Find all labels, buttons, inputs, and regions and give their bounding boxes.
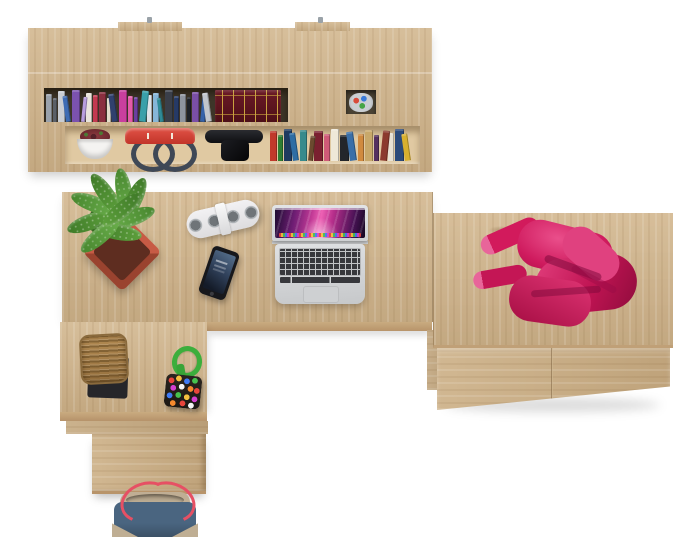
laptop-keyboard (279, 248, 361, 276)
book-spine (187, 97, 191, 122)
book-spine (300, 130, 307, 161)
shelf-upper-compartment (44, 88, 288, 122)
pink-sweater (473, 216, 643, 346)
book-spine (331, 129, 339, 161)
wall-bracket-icon (318, 17, 323, 23)
desk-side-panel (66, 421, 208, 434)
shelf-cup-notch (346, 90, 376, 114)
shelf-mount-tab (118, 22, 182, 31)
potted-plant (64, 184, 158, 286)
screen-menubar (275, 208, 365, 210)
book-spine (46, 94, 52, 122)
succulent-cup (77, 129, 113, 161)
tote-bag (112, 486, 198, 537)
pencil-cup (349, 93, 373, 112)
laptop (272, 205, 368, 304)
bead-pouch (163, 373, 202, 410)
shelf-row1-books (46, 88, 213, 122)
book-spine (324, 134, 330, 161)
book-spine (192, 92, 199, 122)
shelf-edge-highlight (28, 72, 432, 74)
book-spine (180, 94, 186, 122)
laptop-lid (272, 205, 368, 241)
screen-dock (279, 233, 362, 237)
book-spine (99, 92, 106, 122)
laptop-base (275, 244, 365, 304)
red-handbag (123, 128, 197, 162)
wall-bracket-icon (147, 17, 152, 23)
book-spine (128, 96, 133, 122)
book-spine (358, 134, 364, 161)
white-cup (77, 139, 113, 159)
book-spine (278, 135, 283, 161)
book-spine (270, 131, 277, 161)
wicker-basket (79, 333, 130, 385)
shelf-row2-books (270, 127, 412, 161)
headphones (205, 130, 265, 162)
handbag-body (125, 128, 195, 144)
book-spine (93, 95, 98, 122)
book-spine (72, 90, 80, 122)
wall-shelf (28, 28, 432, 172)
book-spine (134, 97, 138, 122)
desk-return-front-edge (60, 412, 207, 421)
desk-front-edge (207, 322, 432, 331)
shelf-mount-tab (295, 22, 350, 31)
antique-book-set (215, 90, 281, 122)
scene (0, 0, 700, 537)
book-spine (165, 90, 173, 122)
book-spine (374, 135, 379, 161)
laptop-screen (275, 208, 365, 238)
headphones-earcup (221, 140, 249, 161)
speaker-clasp (215, 202, 232, 235)
book-spine (53, 98, 57, 122)
book-spine (365, 130, 373, 161)
book-spine (119, 90, 127, 122)
laptop-trackpad (303, 286, 339, 303)
book-spine (174, 96, 179, 122)
laptop-spacebar-row (280, 277, 360, 283)
shelf-lower-compartment (65, 126, 420, 164)
phone-home-button (209, 291, 214, 296)
